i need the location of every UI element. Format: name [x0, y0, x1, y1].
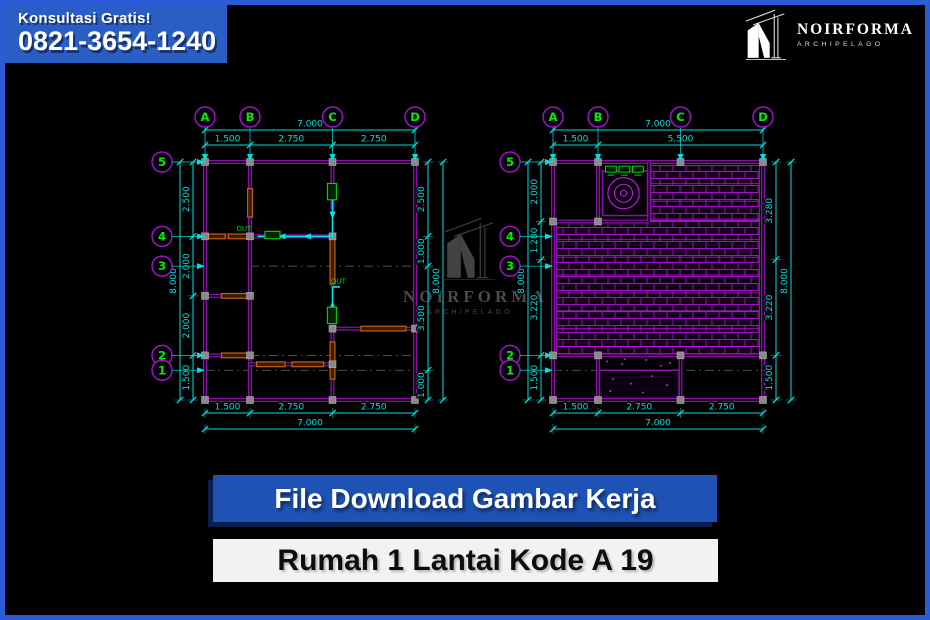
grid-bubble: [195, 107, 215, 127]
cad-text: OUT: [237, 225, 253, 233]
cad-text: 1.500: [530, 365, 540, 391]
column-marker: [329, 159, 336, 166]
grid-bubble: [543, 107, 563, 127]
column-marker: [677, 352, 684, 359]
grid-bubble: [152, 226, 172, 246]
cad-text: 3: [158, 259, 166, 273]
title-banner-label: Rumah 1 Lantai Kode A 19: [277, 544, 653, 577]
column-marker: [595, 159, 602, 166]
cad-text: 1.500: [765, 365, 775, 391]
cad-text: 7.000: [645, 120, 671, 130]
cad-text: 7.000: [297, 419, 323, 429]
door-window-accent: [361, 326, 406, 331]
cad-text: 3.220: [765, 294, 775, 320]
porch-outline: [600, 370, 680, 398]
cad-text: C: [676, 110, 684, 124]
ac-unit: [327, 183, 336, 199]
cad-text: 4: [158, 229, 166, 243]
door-window-accent: [330, 239, 335, 284]
cad-text: 2.500: [417, 186, 427, 212]
column-marker: [329, 361, 336, 368]
cad-text: 2.000: [182, 253, 192, 279]
column-marker: [202, 159, 209, 166]
grid-bubble: [152, 152, 172, 172]
column-marker: [247, 397, 254, 404]
roof-tile-hatch: [557, 222, 760, 356]
download-banner[interactable]: File Download Gambar Kerja: [213, 475, 717, 522]
column-marker: [595, 397, 602, 404]
cad-text: D: [410, 110, 420, 124]
cad-text: 2.750: [709, 403, 735, 413]
grid-bubble: [152, 345, 172, 365]
cad-text: 1: [158, 363, 166, 377]
column-marker: [550, 352, 557, 359]
grid-bubble: [753, 107, 773, 127]
roof-tag: [619, 166, 630, 172]
brand-name: NOIRFORMA: [797, 21, 914, 39]
watermark-brand-sub: ARCHIPELAGO: [403, 309, 537, 316]
door-window-accent: [257, 362, 286, 367]
column-marker: [412, 397, 419, 404]
grid-bubble: [671, 107, 691, 127]
column-marker: [247, 352, 254, 359]
cad-text: 1.500: [215, 403, 241, 413]
cad-text: D: [758, 110, 768, 124]
cad-text: 3.280: [765, 198, 775, 224]
column-marker: [247, 292, 254, 299]
column-marker: [677, 159, 684, 166]
grid-bubble: [240, 107, 260, 127]
cad-text: B: [594, 110, 603, 124]
column-marker: [595, 218, 602, 225]
roof-tile-hatch: [651, 166, 760, 222]
roof-tag: [606, 166, 617, 172]
door-window-accent: [209, 234, 226, 239]
column-marker: [412, 159, 419, 166]
door-window-accent: [222, 353, 249, 358]
cad-text: 1.500: [215, 135, 241, 145]
column-marker: [760, 352, 767, 359]
cad-text: C: [328, 110, 336, 124]
grid-bubble: [588, 107, 608, 127]
column-marker: [760, 159, 767, 166]
cad-text: 7.000: [297, 120, 323, 130]
column-marker: [329, 397, 336, 404]
column-marker: [595, 352, 602, 359]
grid-bubble: [405, 107, 425, 127]
cad-text: 1.000: [417, 372, 427, 398]
roof-fan-box: [603, 171, 648, 216]
column-marker: [677, 397, 684, 404]
roof-plan: 7.0001.5005.5001.5002.7502.7507.0008.000…: [500, 107, 796, 434]
cad-text: 1.500: [563, 403, 589, 413]
column-marker: [550, 218, 557, 225]
watermark: NOIRFORMA ARCHIPELAGO: [403, 216, 537, 316]
roof-tag: [633, 166, 644, 172]
download-banner-label: File Download Gambar Kerja: [274, 483, 655, 514]
cad-text: 7.000: [645, 419, 671, 429]
cad-text: 5: [158, 155, 166, 169]
column-marker: [202, 292, 209, 299]
grid-bubble: [500, 345, 520, 365]
roof-fan-circle: [621, 190, 627, 196]
ac-drain-pipe: [258, 192, 333, 237]
column-marker: [760, 397, 767, 404]
title-banner: Rumah 1 Lantai Kode A 19: [213, 539, 718, 582]
watermark-logo-icon: [441, 216, 499, 280]
door-window-accent: [292, 362, 324, 367]
cad-text: 2.750: [278, 403, 304, 413]
column-marker: [202, 233, 209, 240]
cad-text: 5.500: [668, 135, 694, 145]
column-marker: [247, 159, 254, 166]
cad-text: 8.000: [169, 268, 179, 294]
cad-text: B: [246, 110, 255, 124]
grid-bubble: [500, 360, 520, 380]
column-marker: [202, 352, 209, 359]
cad-text: 2.750: [626, 403, 652, 413]
cad-text: OUT: [331, 277, 347, 285]
column-marker: [550, 397, 557, 404]
door-window-accent: [330, 342, 335, 379]
poster-canvas: OUTOUT7.0001.5002.7502.7501.5002.7502.75…: [0, 0, 930, 620]
cad-text: 2.000: [182, 312, 192, 338]
cad-text: 2.750: [361, 135, 387, 145]
column-marker: [247, 233, 254, 240]
column-marker: [412, 325, 419, 332]
brand-logo-icon: [744, 8, 788, 60]
cad-text: A: [549, 110, 558, 124]
cad-text: 2: [506, 348, 514, 362]
cad-text: 2: [158, 348, 166, 362]
cad-text: 1.500: [182, 365, 192, 391]
cad-text: 2.000: [530, 179, 540, 205]
door-window-accent: [248, 189, 253, 217]
cad-text: 8.000: [780, 268, 790, 294]
grid-bubble: [152, 256, 172, 276]
door-window-accent: [222, 293, 249, 298]
grid-bubble: [152, 360, 172, 380]
ac-unit: [327, 307, 336, 323]
column-marker: [202, 397, 209, 404]
column-marker: [329, 325, 336, 332]
brand-logo: NOIRFORMA ARCHIPELAGO: [744, 8, 914, 60]
roof-fan-circle: [615, 184, 633, 202]
watermark-brand-name: NOIRFORMA: [403, 287, 537, 307]
cad-text: A: [201, 110, 210, 124]
cad-text: 2.750: [361, 403, 387, 413]
contact-badge: Konsultasi Gratis! 0821-3654-1240: [5, 5, 227, 63]
door-window-accent: [228, 234, 247, 239]
ac-drain-pipe: [333, 287, 341, 324]
cad-text: 1.500: [563, 135, 589, 145]
column-marker: [550, 159, 557, 166]
cad-text: 2.500: [182, 186, 192, 212]
grid-bubble: [323, 107, 343, 127]
cad-text: 5: [506, 155, 514, 169]
badge-offer-text: Konsultasi Gratis!: [18, 10, 217, 27]
cad-text: 1: [506, 363, 514, 377]
cad-text: 2.750: [278, 135, 304, 145]
badge-phone-number: 0821-3654-1240: [18, 27, 217, 55]
column-marker: [329, 233, 336, 240]
grid-bubble: [500, 152, 520, 172]
ac-unit: [265, 231, 280, 238]
brand-sub: ARCHIPELAGO: [797, 41, 914, 48]
roof-fan-circle: [608, 178, 639, 209]
